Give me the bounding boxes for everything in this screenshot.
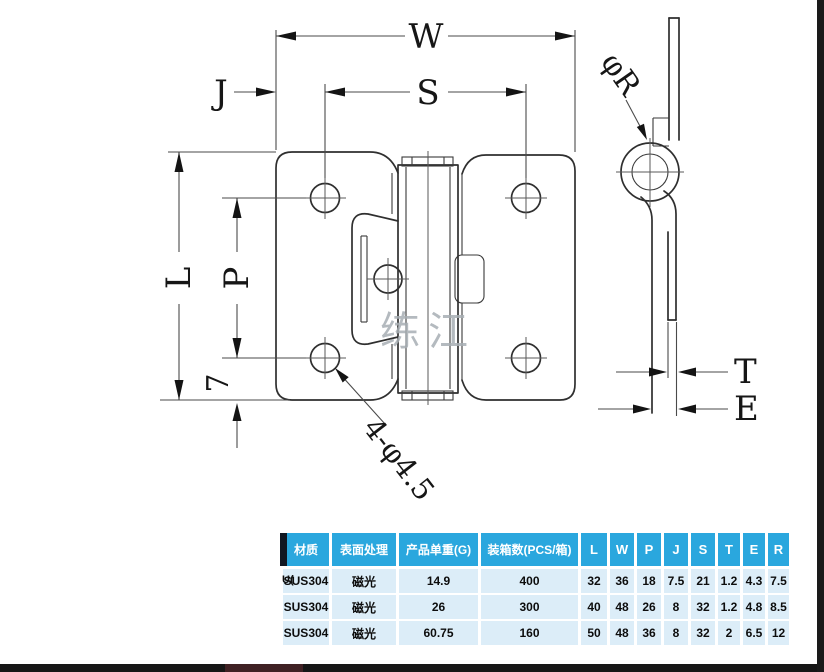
- cell-e: 6.5: [743, 621, 765, 645]
- hinge-front-view: 练江: [276, 151, 575, 405]
- strike-tab: [455, 255, 484, 303]
- table-edge-crop-artifact: [280, 533, 287, 566]
- cell-l: 50: [581, 621, 607, 645]
- cell-material: U( SUS304: [283, 569, 329, 593]
- cell-s: 32: [691, 621, 715, 645]
- cell-p: 26: [637, 595, 661, 619]
- dim-label-e: E: [734, 389, 759, 429]
- cell-packing-qty: 400: [481, 569, 578, 593]
- cell-surface: 磁光: [332, 621, 396, 645]
- cell-t: 1.2: [718, 595, 740, 619]
- cell-l: 32: [581, 569, 607, 593]
- dim-label-t: T: [734, 352, 757, 392]
- cell-e: 4.8: [743, 595, 765, 619]
- col-header-j: J: [664, 533, 688, 566]
- col-header-s: S: [691, 533, 715, 566]
- cell-w: 48: [610, 621, 634, 645]
- technical-drawing: 练江 W S J: [0, 0, 824, 530]
- cell-surface: 磁光: [332, 595, 396, 619]
- col-header-packing-qty: 装箱数(PCS/箱): [481, 533, 578, 566]
- cell-j: 7.5: [664, 569, 688, 593]
- cell-s: 21: [691, 569, 715, 593]
- cell-l: 40: [581, 595, 607, 619]
- col-header-e: E: [743, 533, 765, 566]
- cell-r: 8.5: [768, 595, 789, 619]
- cell-t: 1.2: [718, 569, 740, 593]
- cell-packing-qty: 160: [481, 621, 578, 645]
- cell-w: 48: [610, 595, 634, 619]
- cell-unit-weight: 14.9: [399, 569, 478, 593]
- dim-label-s: S: [416, 73, 439, 113]
- spec-table: 材质 表面处理 产品单重(G) 装箱数(PCS/箱) L W P J S T E…: [283, 533, 789, 647]
- cell-s: 32: [691, 595, 715, 619]
- product-datasheet: 练江 W S J: [0, 0, 824, 672]
- hinge-barrel: [398, 151, 458, 405]
- right-border-bar: [817, 0, 824, 672]
- dim-label-j: J: [211, 73, 228, 113]
- cell-r: 12: [768, 621, 789, 645]
- cell-surface: 磁光: [332, 569, 396, 593]
- col-header-l: L: [581, 533, 607, 566]
- col-header-unit-weight: 产品单重(G): [399, 533, 478, 566]
- cell-j: 8: [664, 595, 688, 619]
- col-header-r: R: [768, 533, 789, 566]
- col-header-w: W: [610, 533, 634, 566]
- watermark-text: 练江: [380, 309, 476, 355]
- col-header-surface: 表面处理: [332, 533, 396, 566]
- dim-label-l: L: [159, 267, 199, 290]
- dim-label-phir: φR: [593, 47, 647, 104]
- dim-label-7: 7: [201, 373, 236, 392]
- cell-w: 36: [610, 569, 634, 593]
- cropped-text-artifact: U(: [282, 574, 294, 586]
- cell-p: 18: [637, 569, 661, 593]
- cell-packing-qty: 300: [481, 595, 578, 619]
- col-header-t: T: [718, 533, 740, 566]
- cell-material: SUS304: [283, 595, 329, 619]
- bottom-bar-red-tint: [225, 664, 303, 672]
- cell-j: 8: [664, 621, 688, 645]
- cell-unit-weight: 60.75: [399, 621, 478, 645]
- right-plate-outline: [462, 155, 575, 400]
- cell-unit-weight: 26: [399, 595, 478, 619]
- cell-e: 4.3: [743, 569, 765, 593]
- bottom-border-bar: [0, 664, 824, 672]
- holes-note-label: 4-φ4.5: [356, 411, 441, 507]
- cell-t: 2: [718, 621, 740, 645]
- dim-label-w: W: [409, 17, 444, 57]
- cell-p: 36: [637, 621, 661, 645]
- col-header-p: P: [637, 533, 661, 566]
- cell-material: SUS304: [283, 621, 329, 645]
- col-header-material: 材质: [283, 533, 329, 566]
- dim-label-p: P: [217, 267, 257, 290]
- cell-r: 7.5: [768, 569, 789, 593]
